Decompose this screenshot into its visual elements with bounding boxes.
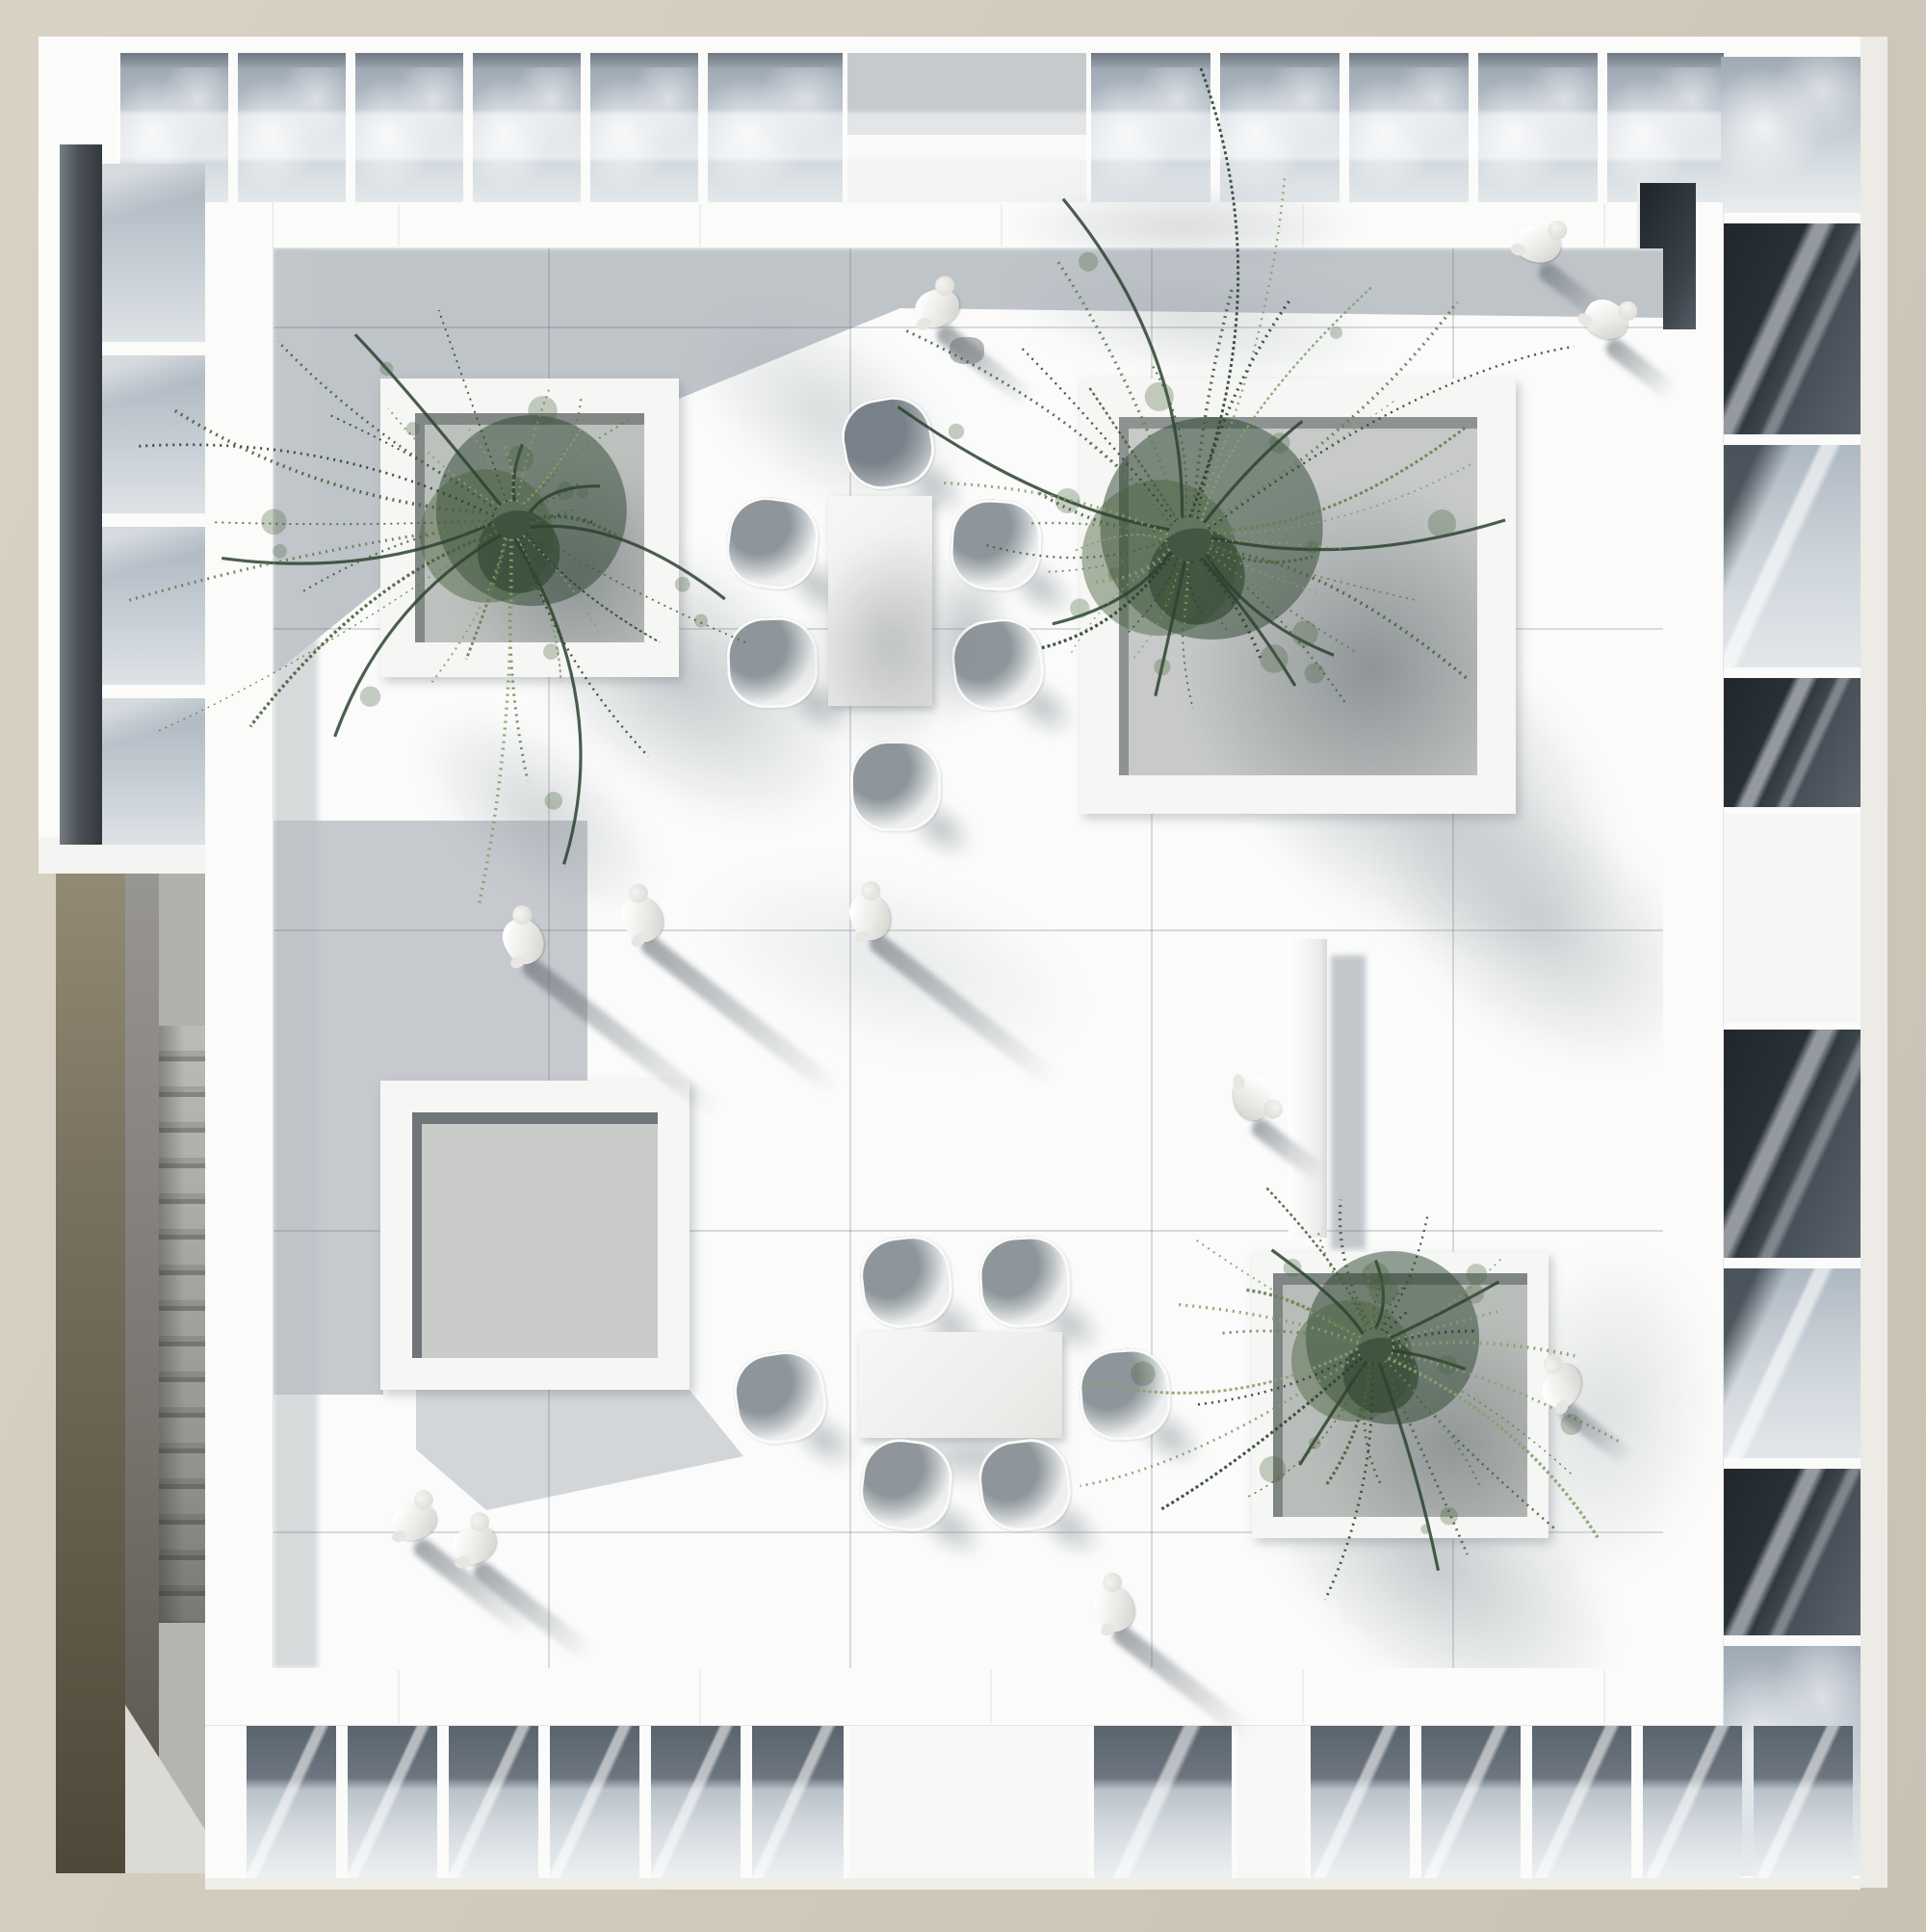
left-glass-cell xyxy=(102,355,205,513)
planter-sw-empty-interior xyxy=(412,1112,658,1358)
planter-nw-canopy-shadow xyxy=(433,431,644,642)
parapet-joint xyxy=(1603,1670,1605,1724)
planter-se-interior xyxy=(1273,1273,1527,1517)
skylight-frame xyxy=(1220,53,1340,67)
south-band-pier xyxy=(849,1726,1088,1878)
skylight-frame xyxy=(1478,53,1598,67)
parapet-joint xyxy=(699,204,701,247)
left-glass-cell xyxy=(102,164,205,342)
parapet-joint xyxy=(1603,204,1605,247)
skylight-frame xyxy=(120,53,228,67)
south-glass-cell xyxy=(1754,1726,1853,1878)
south-glass-cell xyxy=(1311,1726,1410,1878)
chair-8 xyxy=(977,1235,1073,1330)
cast-shadow xyxy=(752,481,1029,805)
staircase-shade xyxy=(159,1026,205,1623)
cast-shadow xyxy=(953,172,1416,278)
parapet-joint xyxy=(398,1670,400,1724)
building-outer-east-edge xyxy=(1861,37,1887,1888)
planter-se-canopy-shadow xyxy=(1293,1292,1527,1517)
south-glass-cell xyxy=(449,1726,538,1878)
planter-nw-interior xyxy=(415,413,644,642)
right-glass-cell xyxy=(1721,1030,1861,1258)
right-glass-cell xyxy=(1721,1469,1861,1635)
tile-joint-h xyxy=(273,326,1663,328)
skylight-frame xyxy=(590,53,698,67)
planter-ne-canopy-shadow xyxy=(1148,446,1477,775)
skylight-frame xyxy=(708,53,843,67)
south-glass-cell xyxy=(550,1726,639,1878)
skylight-frame xyxy=(238,53,346,67)
person-7-sit xyxy=(1222,1068,1285,1133)
south-glass-cell xyxy=(752,1726,844,1878)
skylight-frame xyxy=(473,53,581,67)
skylight-frame xyxy=(1607,53,1724,67)
planter-ne-interior xyxy=(1119,417,1477,775)
table-south xyxy=(859,1332,1062,1438)
south-parapet xyxy=(205,1668,1724,1726)
parapet-joint xyxy=(990,1670,992,1724)
right-glass-cell xyxy=(1721,445,1861,667)
left-glass-cell xyxy=(102,527,205,685)
olive-lower-wall xyxy=(56,874,125,1873)
south-glass-cell xyxy=(348,1726,437,1878)
right-glass-cell xyxy=(1721,678,1861,807)
cast-shadow xyxy=(1331,955,1366,1249)
bench-plinth xyxy=(1288,939,1327,1238)
south-glass-cell xyxy=(651,1726,741,1878)
west-parapet xyxy=(205,202,273,1726)
parapet-joint xyxy=(699,1670,701,1724)
glass-reflection-streak xyxy=(116,112,1729,160)
south-band-pier xyxy=(1237,1726,1305,1878)
south-glass-cell xyxy=(247,1726,336,1878)
south-outer-sill xyxy=(205,1878,1861,1890)
left-glass-cell xyxy=(102,698,205,845)
right-glass-cell xyxy=(1721,223,1861,434)
chair-10 xyxy=(1077,1346,1173,1443)
parapet-joint xyxy=(398,204,400,247)
skylight-frame xyxy=(1349,53,1469,67)
tile-joint-h xyxy=(273,929,1663,931)
right-band-pier xyxy=(1721,814,1861,1023)
stair-upper-landing xyxy=(159,874,205,1026)
left-band-mullion xyxy=(60,144,102,845)
skylight-frame xyxy=(355,53,463,67)
south-glass-cell xyxy=(1421,1726,1521,1878)
person-head xyxy=(1262,1098,1284,1120)
south-glass-cell xyxy=(1532,1726,1631,1878)
parapet-joint xyxy=(1302,1670,1304,1724)
south-glass-cell xyxy=(1094,1726,1232,1878)
rooftop-courtyard-render xyxy=(0,0,1926,1932)
south-glass-cell xyxy=(1643,1726,1742,1878)
skylight-frame xyxy=(1091,53,1210,67)
right-glass-cell xyxy=(1721,57,1861,213)
